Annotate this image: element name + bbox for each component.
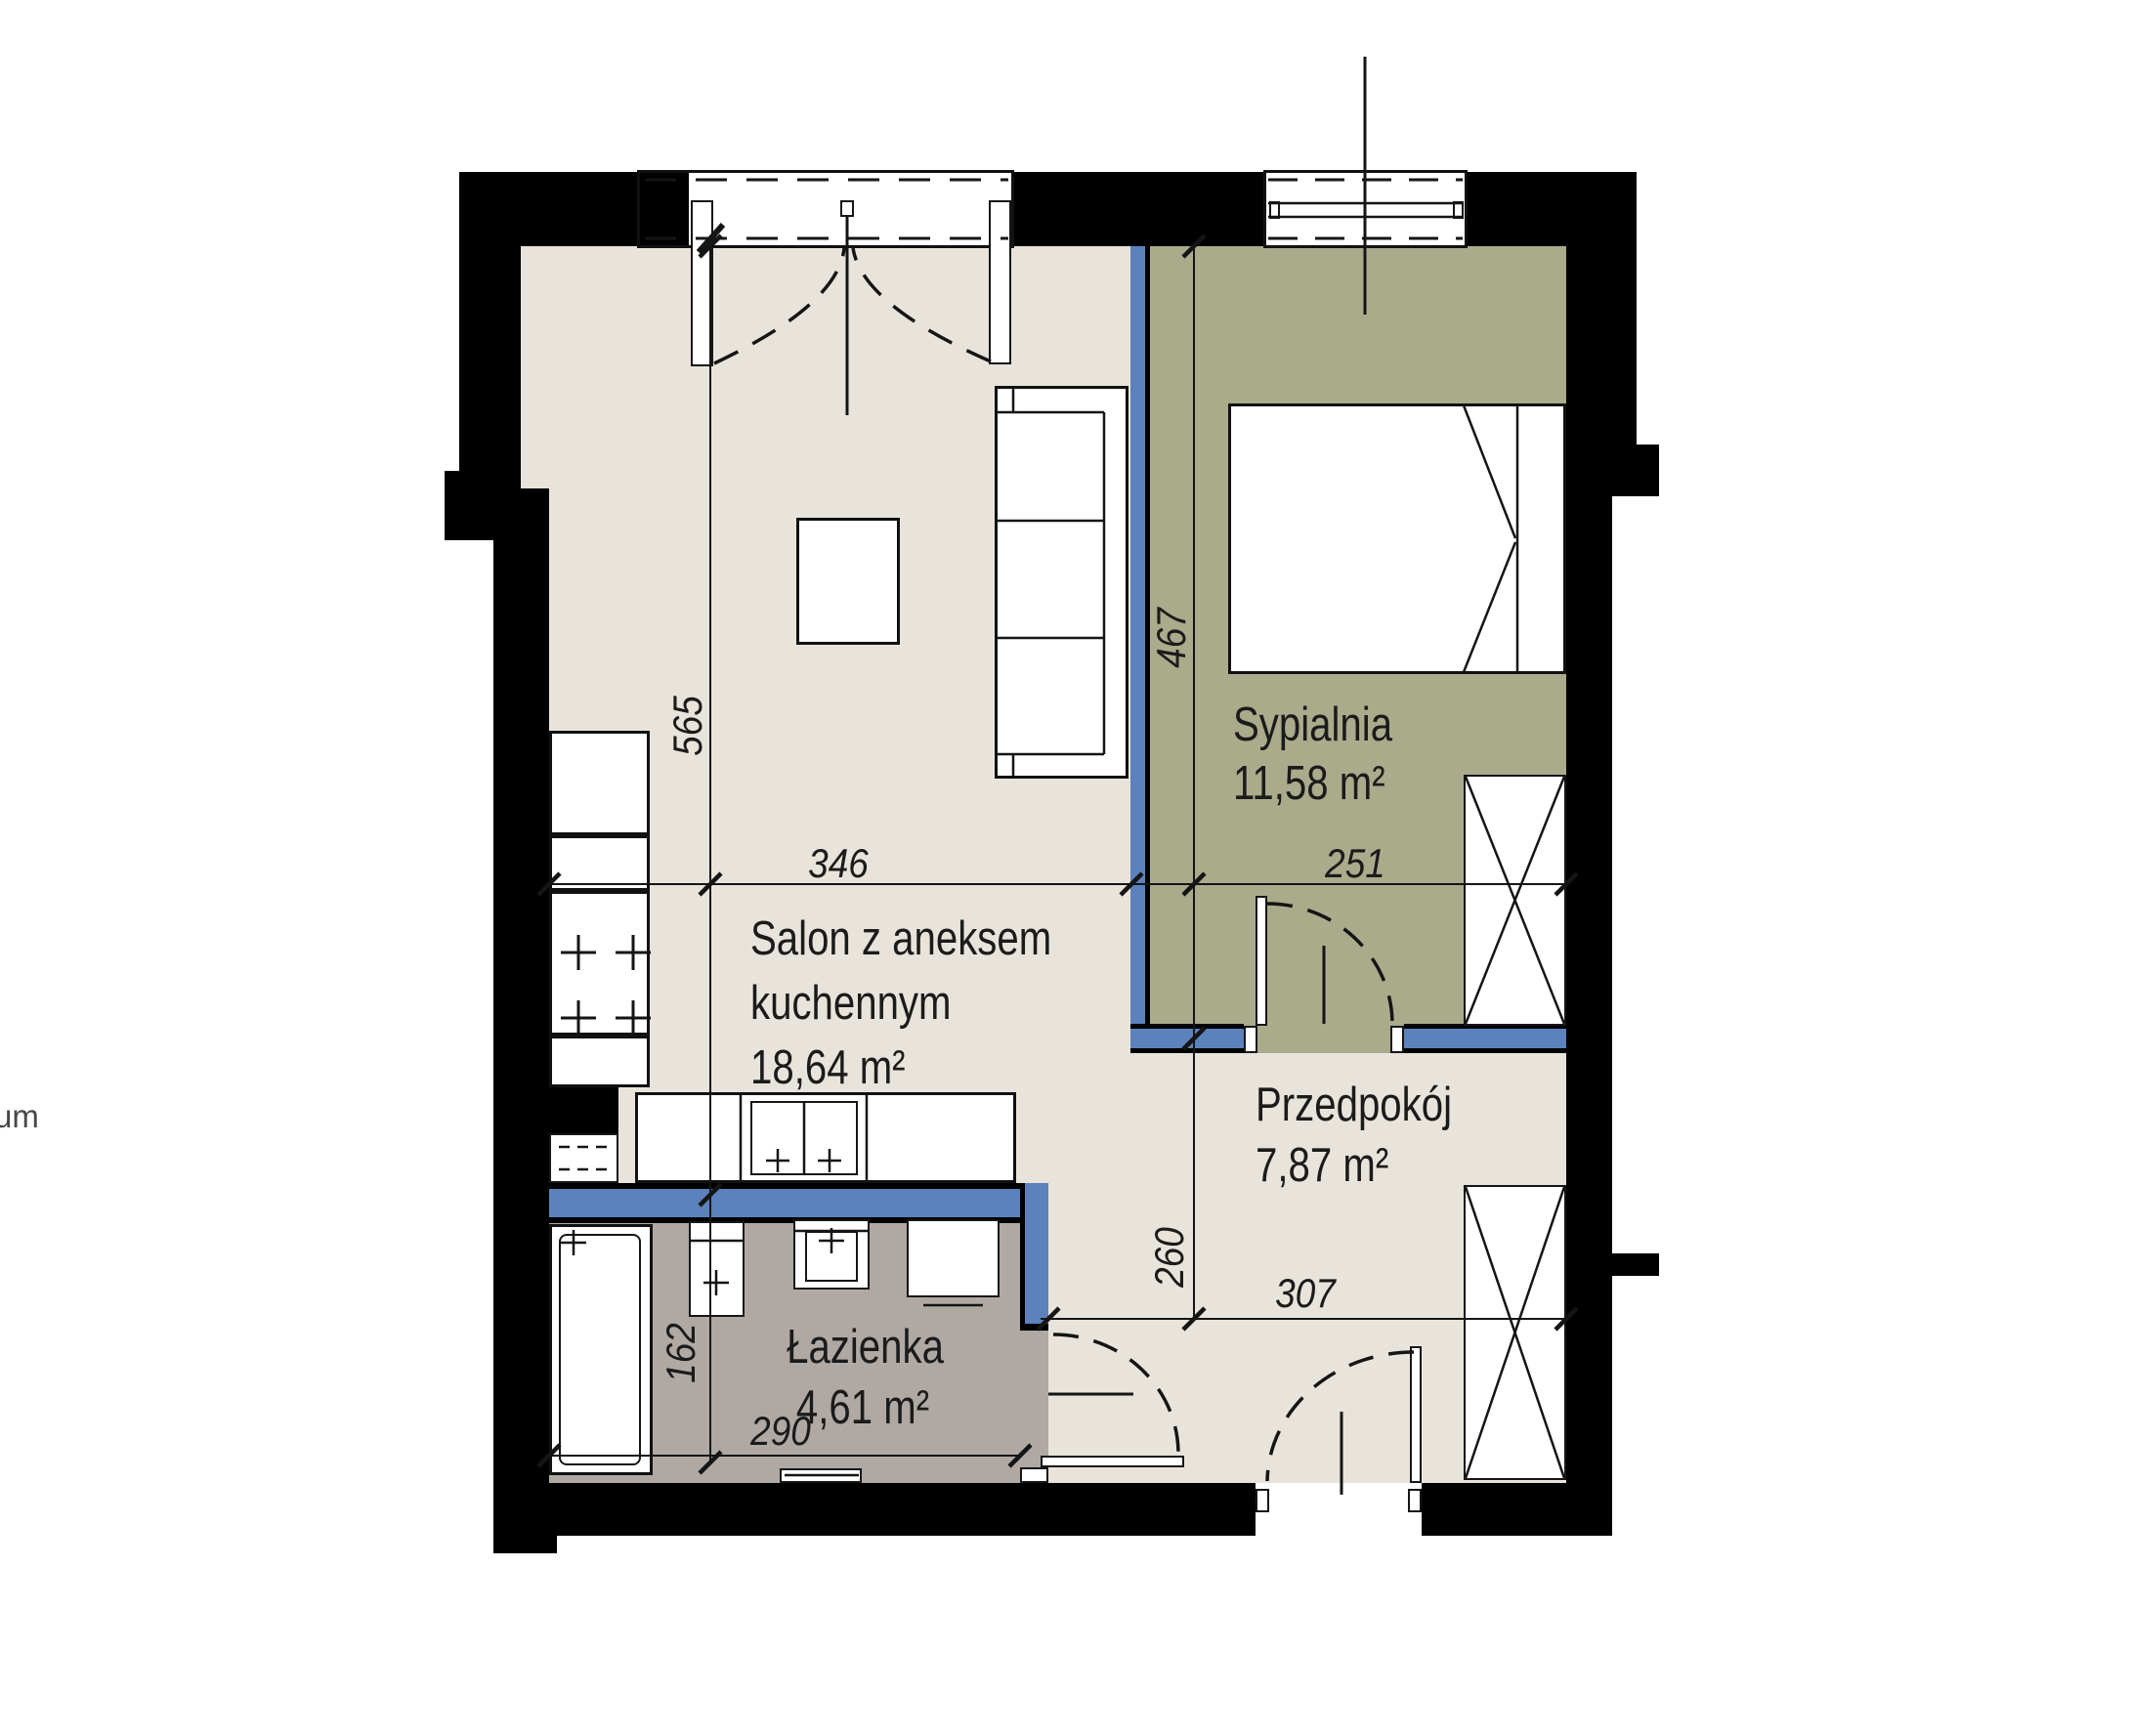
wardrobe-przedpokoj [1464, 1185, 1566, 1480]
kitchen-hob [549, 891, 650, 1036]
floor-sypialnia-door-gap [1257, 1024, 1390, 1053]
balcony-door-leaf-left [691, 200, 713, 366]
bedroom-window-cap-left [1269, 201, 1280, 219]
bedroom-door-leaf [1256, 896, 1267, 1026]
shaft [549, 1133, 618, 1183]
sypialnia-area: 11,58 m² [1233, 754, 1392, 813]
dim-salon-height: 565 [664, 696, 711, 756]
bedroom-door-jamb-left [1244, 1026, 1257, 1053]
dim-bedroom-width: 251 [1325, 840, 1385, 887]
watermark-fragment: um [0, 1098, 39, 1135]
toilet-bowl [805, 1231, 858, 1282]
bedroom-window-cap-right [1453, 201, 1464, 219]
wall-right-lower [1566, 496, 1612, 1536]
wall-right-upper [1566, 172, 1637, 445]
bluewall-salon-sypialnia [1130, 246, 1145, 1031]
wall-bottom-corner [493, 1522, 557, 1553]
wall-top-middle [1011, 172, 1265, 246]
wall-right-step [1566, 445, 1659, 496]
entry-door-leaf [1410, 1346, 1422, 1483]
label-salon: Salon z aneksem kuchennym 18,64 m² [750, 907, 1051, 1100]
entry-door-jamb-left [1256, 1489, 1269, 1512]
wall-left-lower [493, 488, 549, 1553]
salon-name-line1: Salon z aneksem [750, 907, 1051, 971]
bathtub-inner [559, 1234, 641, 1465]
dim-hall-height: 260 [1146, 1227, 1193, 1288]
label-sypialnia: Sypialnia 11,58 m² [1233, 696, 1392, 813]
bluewall-bath-right [1020, 1183, 1048, 1331]
bath-threshold [780, 1468, 862, 1483]
dim-hall-width: 307 [1275, 1270, 1336, 1317]
washbasin [689, 1221, 745, 1317]
kitchen-counter-3 [549, 1036, 650, 1087]
washing-machine [907, 1219, 1000, 1297]
bathroom-door-jamb [1020, 1467, 1048, 1483]
bluewall-hall-bedroom [1404, 1024, 1566, 1053]
bathroom-door-leaf [1041, 1456, 1184, 1467]
sypialnia-name: Sypialnia [1233, 696, 1392, 754]
wall-right-stub [1612, 1253, 1659, 1276]
bedroom-door-jamb-right [1390, 1026, 1404, 1053]
bedroom-window-frame [1263, 170, 1468, 248]
bluewall-bath-top [549, 1183, 1048, 1223]
przedpokoj-name: Przedpokój [1256, 1075, 1452, 1135]
wall-shaft [549, 1087, 618, 1133]
lazienka-name: Łazienka [787, 1317, 939, 1377]
kitchen-sink [750, 1101, 858, 1175]
balcony-door-leaf-right [989, 200, 1011, 364]
bed [1228, 403, 1566, 674]
bluewall-hall-stub [1130, 1024, 1244, 1053]
salon-area: 18,64 m² [750, 1036, 1051, 1100]
balcony-door-center-post [840, 200, 854, 217]
wardrobe-sypialnia [1464, 775, 1566, 1026]
floor-plan: Salon z aneksem kuchennym 18,64 m² Sypia… [0, 0, 2129, 1736]
dim-bedroom-height: 467 [1148, 608, 1195, 668]
kitchen-counter-2 [549, 835, 650, 891]
wall-bottom-right [1422, 1483, 1612, 1536]
salon-name-line2: kuchennym [750, 971, 1051, 1036]
sofa [995, 386, 1128, 779]
wall-left-upper [459, 172, 521, 488]
label-przedpokoj: Przedpokój 7,87 m² [1256, 1075, 1452, 1196]
kitchen-counter-1 [549, 731, 650, 835]
dim-salon-width: 346 [808, 840, 869, 887]
dim-bath-width: 290 [750, 1408, 811, 1455]
dim-bath-height: 162 [658, 1323, 704, 1383]
coffee-table [796, 518, 900, 645]
przedpokoj-area: 7,87 m² [1256, 1135, 1452, 1196]
wall-bottom-left [549, 1483, 1256, 1536]
entry-door-jamb-right [1408, 1489, 1422, 1512]
